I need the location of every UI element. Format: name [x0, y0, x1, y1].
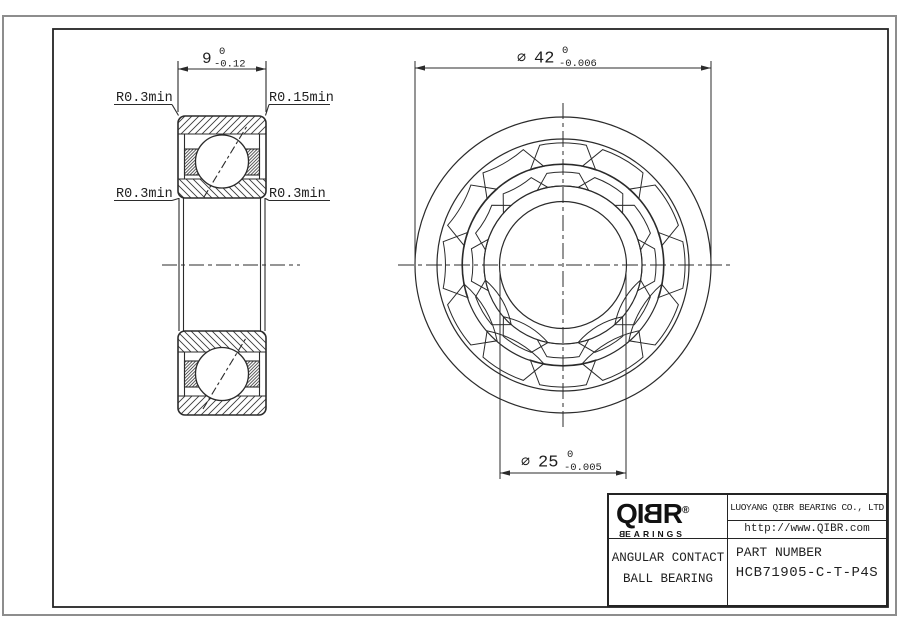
- cage-pockets-outer-row: [443, 143, 685, 387]
- radius-label-top-right: R0.15min: [269, 91, 334, 106]
- company-website: http://www.QIBR.com: [728, 521, 886, 539]
- bore-dim-phi: ∅: [521, 454, 530, 471]
- od-dim-phi: ∅: [517, 50, 526, 67]
- product-line2: BALL BEARING: [609, 569, 727, 590]
- logo-cell: QIBR® BEARINGS: [609, 495, 728, 539]
- outer-ring-hatch-top: [178, 116, 266, 134]
- arrowhead-right: [256, 66, 266, 71]
- part-number-cell: PART NUMBER HCB71905-C-T-P4S: [728, 539, 886, 605]
- drawing-page: 9 0 -0.12 R0.3min R0.15min R0.3min R0.3m…: [0, 0, 900, 636]
- width-dim-tol-bottom: -0.12: [214, 59, 246, 71]
- ball-upper: [196, 135, 249, 188]
- radius-label-top-left: R0.3min: [116, 91, 173, 106]
- title-block: QIBR® BEARINGS LUOYANG QIBR BEARING CO.,…: [607, 493, 888, 607]
- logo-letters-post: R: [663, 498, 682, 529]
- section-lower-half: [178, 331, 266, 415]
- logo-sub-mirrored-b: B: [616, 529, 625, 539]
- logo-sub-rest: EARINGS: [625, 529, 685, 539]
- arrowhead-right: [701, 65, 711, 70]
- width-dim-tol-top: 0: [219, 46, 225, 58]
- front-view: [398, 61, 730, 479]
- section-view: [114, 61, 330, 415]
- qibr-logo: QIBR®: [616, 497, 727, 528]
- ball-lower: [196, 348, 249, 401]
- part-number-label: PART NUMBER: [728, 539, 886, 560]
- arrowhead-left: [415, 65, 425, 70]
- part-number-value: HCB71905-C-T-P4S: [728, 565, 886, 581]
- od-dim-value: 42: [534, 50, 554, 69]
- bore-dim-tol-top: 0: [567, 449, 573, 461]
- bore-dim-tol-bottom: -0.005: [564, 462, 602, 474]
- logo-subtitle: BEARINGS: [616, 529, 727, 539]
- width-dim-value: 9: [202, 50, 212, 68]
- arrowhead-left: [178, 66, 188, 71]
- radius-label-mid-right: R0.3min: [269, 187, 326, 202]
- bore-dim-value: 25: [538, 454, 558, 473]
- radius-label-mid-left: R0.3min: [116, 187, 173, 202]
- product-line1: ANGULAR CONTACT: [609, 548, 727, 569]
- arrowhead-left: [500, 470, 510, 475]
- logo-mirrored-b: B: [644, 500, 663, 528]
- arrowhead-right: [616, 470, 626, 475]
- od-dim-tol-bottom: -0.006: [559, 58, 597, 70]
- product-description: ANGULAR CONTACT BALL BEARING: [609, 539, 728, 605]
- logo-letters-pre: QI: [616, 498, 644, 529]
- registered-trademark-symbol: ®: [682, 505, 689, 516]
- od-dim-tol-top: 0: [562, 45, 568, 57]
- section-upper-half: [178, 116, 266, 198]
- company-name: LUOYANG QIBR BEARING CO., LTD: [728, 495, 886, 521]
